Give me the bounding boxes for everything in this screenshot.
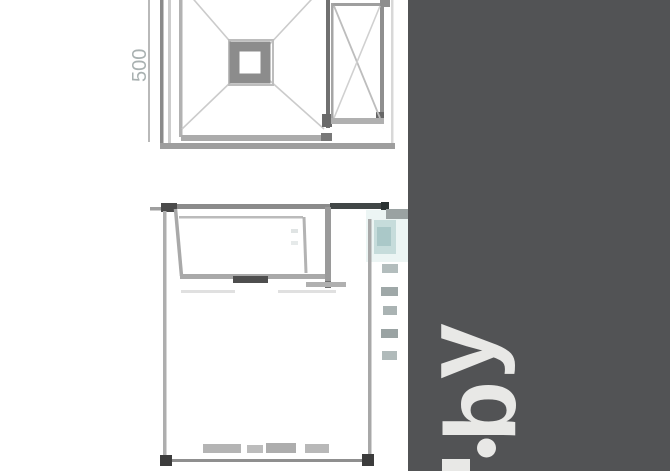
svg-text:y: y <box>404 323 516 379</box>
svg-text:b: b <box>425 381 537 442</box>
svg-text:500: 500 <box>129 49 151 82</box>
